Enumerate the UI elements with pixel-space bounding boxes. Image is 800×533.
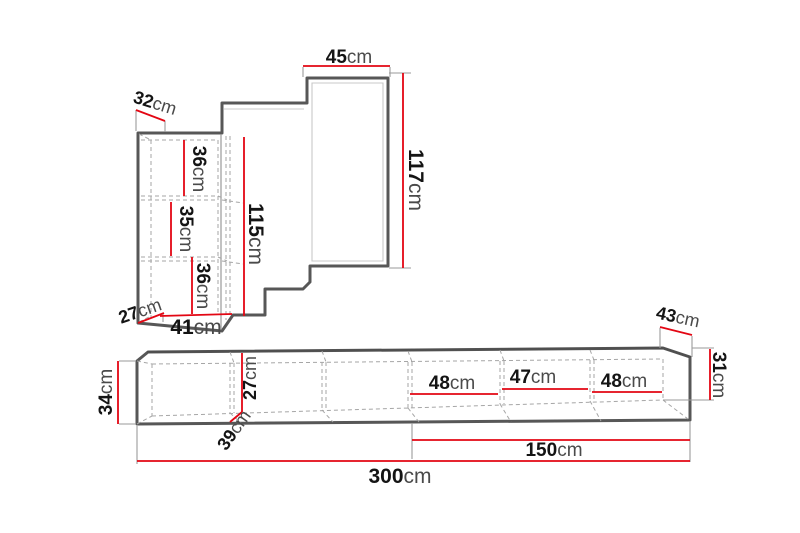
dim-label-top-depth: 32cm (131, 87, 179, 119)
dim-label-cabinet-width: 41cm (170, 316, 221, 339)
dim-label-end-height: 31cm (709, 352, 730, 398)
dim-label-compartment-right: 48cm (601, 371, 647, 392)
dim-label-compartment-left: 48cm (429, 373, 475, 394)
dim-label-total-length: 300cm (368, 465, 431, 488)
dim-label-top-panel-width: 45cm (326, 47, 372, 68)
dim-label-bench-height: 34cm (96, 369, 117, 415)
diagram-canvas: 45cm 117cm 32cm 36cm 35cm 36cm 115cm 27c… (0, 0, 800, 533)
dim-label-right-section-length: 150cm (525, 440, 582, 461)
dim-label-bench-inner-height: 27cm (240, 356, 260, 400)
furniture-dimension-diagram: 45cm 117cm 32cm 36cm 35cm 36cm 115cm 27c… (0, 0, 800, 533)
dim-label-right-panel-height: 117cm (405, 149, 428, 211)
dim-label-compartment-center: 47cm (510, 367, 556, 388)
dim-label-compartment-top: 36cm (189, 146, 210, 192)
dim-label-cabinet-height: 115cm (245, 203, 268, 265)
dim-label-compartment-bottom: 36cm (193, 263, 214, 309)
dim-label-compartment-middle: 35cm (176, 206, 197, 252)
